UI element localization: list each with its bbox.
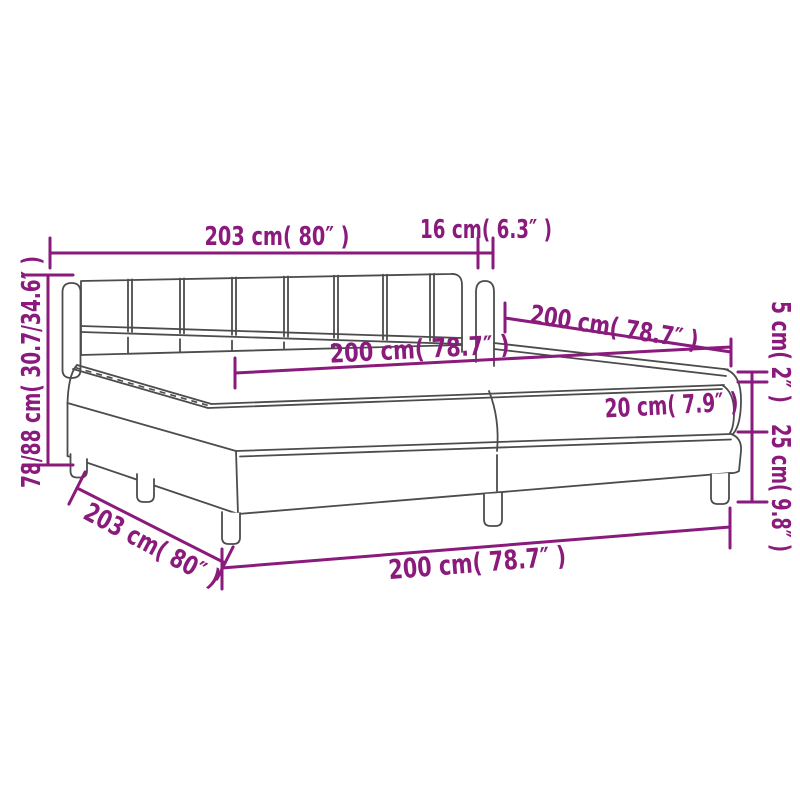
- dim-headboard-width: 203 cm( 80″ ) 16 cm( 6.3″ ): [50, 215, 552, 268]
- base-near-corner: [236, 451, 238, 514]
- dimension-annotations: 203 cm( 80″ ) 16 cm( 6.3″ ) 78/88 cm( 30…: [17, 215, 795, 594]
- dim-right-heights: 5 cm( 2″ ) 25 cm( 9.8″ ): [738, 301, 795, 552]
- leg-left-mid: [137, 474, 154, 502]
- legs: [71, 454, 730, 544]
- leg-near-corner: [222, 512, 240, 544]
- dim-label-headboard-height: 78/88 cm( 30.7/34.6″ ): [17, 256, 47, 488]
- dim-label-length-lower: 200 cm( 78.7″ ): [387, 541, 567, 586]
- headboard-left-wing: [63, 283, 81, 378]
- mattress-bottom-left: [68, 403, 237, 451]
- dim-label-wing-depth: 16 cm( 6.3″ ): [420, 215, 552, 245]
- bed-dimension-diagram: 203 cm( 80″ ) 16 cm( 6.3″ ) 78/88 cm( 30…: [0, 0, 800, 800]
- dim-label-topper-height: 5 cm( 2″ ): [765, 301, 795, 403]
- leg-foot-corner: [711, 473, 729, 504]
- dim-label-surface-length: 200 cm( 78.7″ ): [329, 330, 510, 369]
- dim-label-side-depth: 203 cm( 80″ ): [78, 497, 225, 594]
- dim-label-length-upper: 200 cm( 78.7″ ): [528, 300, 701, 356]
- dim-label-base-height: 25 cm( 9.8″ ): [765, 424, 795, 552]
- leg-front-mid: [484, 493, 502, 526]
- diagram-canvas: 203 cm( 80″ ) 16 cm( 6.3″ ) 78/88 cm( 30…: [0, 0, 800, 800]
- dim-label-headboard-width: 203 cm( 80″ ): [205, 222, 350, 252]
- dim-label-mattress-height: 20 cm( 7.9″ ): [604, 388, 739, 425]
- mattress-left-piping-stitch: [75, 368, 210, 407]
- dim-length-lower: 200 cm( 78.7″ ): [222, 508, 730, 589]
